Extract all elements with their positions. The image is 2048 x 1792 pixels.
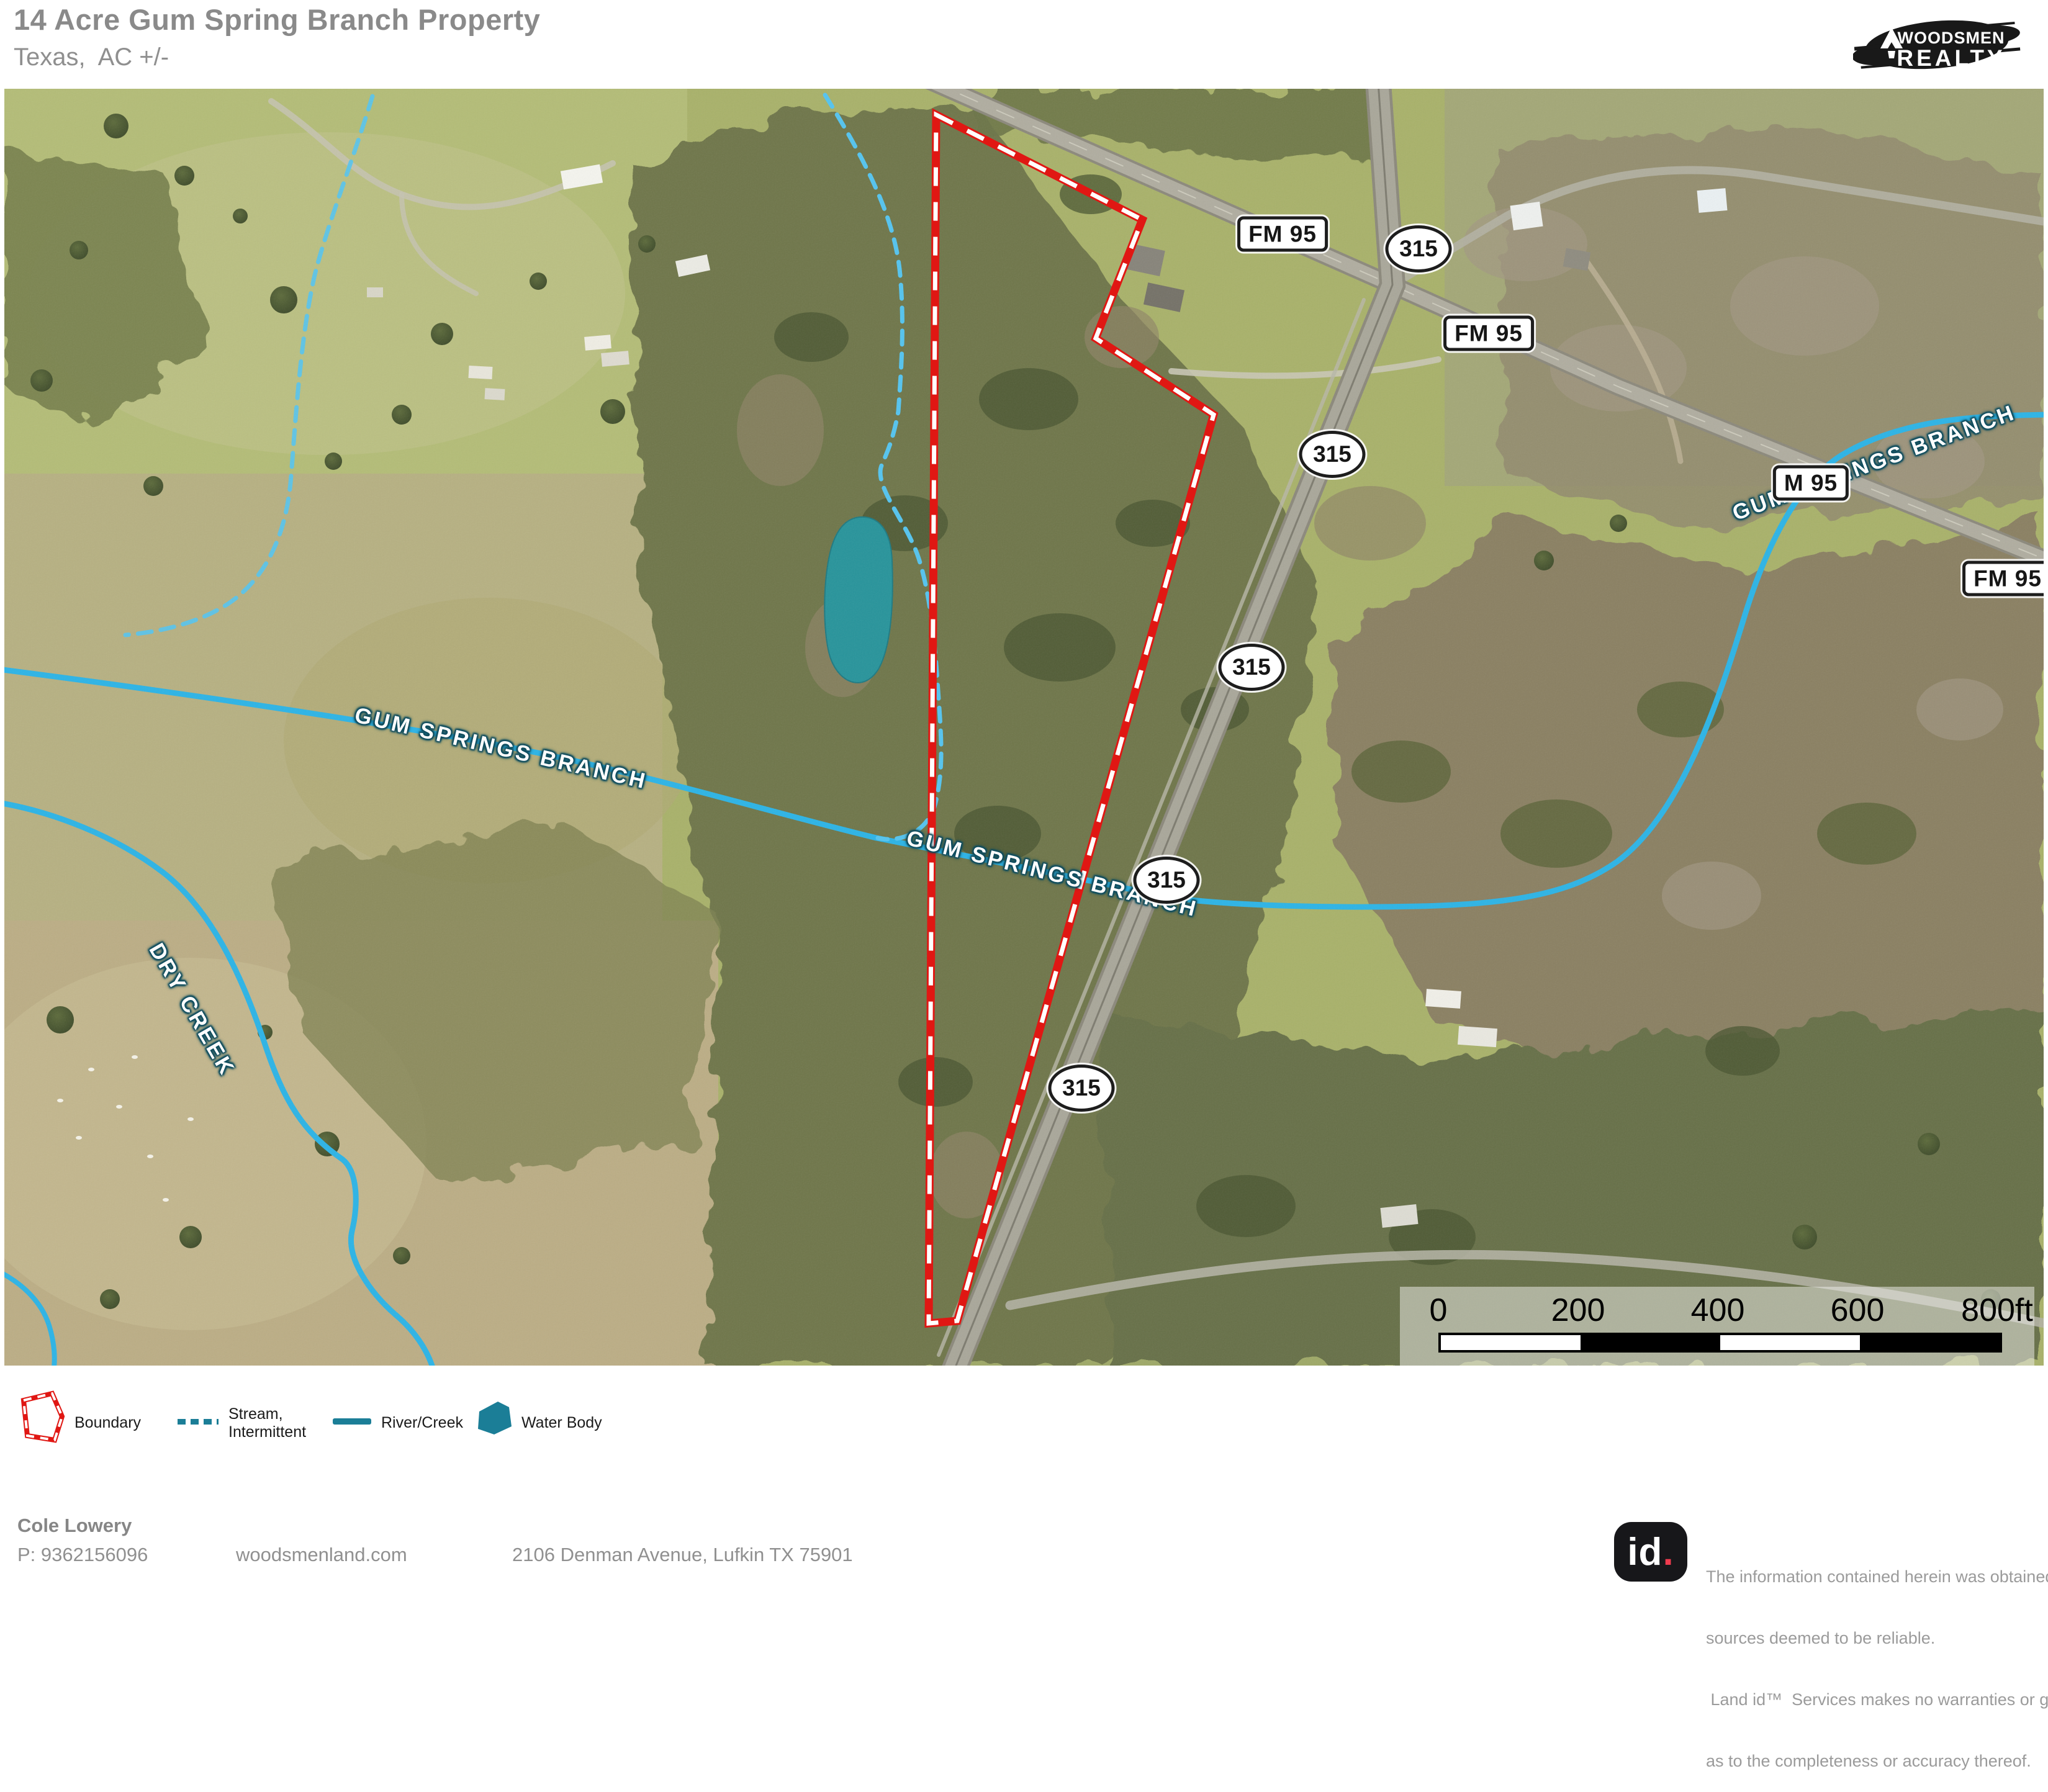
route-shield-315: 315 [1049,1065,1115,1112]
disclaimer-line: as to the completeness or accuracy there… [1706,1751,2048,1772]
land-id-logo-text: id [1627,1530,1662,1574]
page-title: 14 Acre Gum Spring Branch Property [14,2,540,37]
route-shield-315: 315 [1386,225,1452,272]
route-shield-315: 315 [1299,431,1366,478]
legend: Boundary Stream, Intermittent River/Cree… [17,1389,762,1454]
route-shield-315: 315 [1219,644,1285,691]
land-id-logo: id. [1614,1522,1687,1582]
land-id-logo-dot: . [1662,1530,1674,1574]
route-shield-m-95: M 95 [1773,466,1849,501]
route-shield-315: 315 [1134,857,1200,904]
agent-name: Cole Lowery [17,1515,132,1537]
scale-tick-400: 400 [1691,1292,1745,1329]
brand-name-bottom: REALTY [1897,45,2005,71]
scale-tick-600: 600 [1831,1292,1885,1329]
property-map: FM 95315FM 95M 95FM 95315315315315GUM SP… [4,89,2044,1366]
legend-label-water-body: Water Body [521,1414,602,1432]
stream-label-gum-springs-branch: GUM SPRINGS BRANCH [1730,400,2019,526]
brand-splash: WOODSMEN REALTY [1853,9,2021,82]
agent-phone: P: 9362156096 [17,1544,148,1566]
scale-tick-800ft: 800ft [1961,1292,2033,1329]
water-body-legend-icon [476,1400,513,1436]
boundary-legend-icon [17,1390,66,1446]
woodsmen-realty-logo: WOODSMEN REALTY [1853,9,2021,82]
disclaimer: The information contained herein was obt… [1706,1526,2048,1792]
river-creek-legend-icon [333,1418,371,1425]
agent-website[interactable]: woodsmenland.com [236,1544,407,1566]
route-shield-fm-95: FM 95 [1443,316,1534,351]
map-label-overlay: FM 95315FM 95M 95FM 95315315315315GUM SP… [4,89,2044,1366]
stream-label-dry-creek: DRY CREEK [144,939,240,1081]
route-shield-fm-95: FM 95 [1962,561,2044,597]
scale-bar: 0200400600800ft [1400,1287,2034,1366]
disclaimer-line: The information contained herein was obt… [1706,1567,2048,1587]
legend-label-stream: Stream, Intermittent [228,1405,306,1441]
scale-tick-200: 200 [1551,1292,1605,1329]
disclaimer-line: sources deemed to be reliable. [1706,1628,2048,1649]
brand-name-top: WOODSMEN [1898,29,2005,47]
stream-label-gum-springs-branch: GUM SPRINGS BRANCH [353,703,650,794]
agent-address: 2106 Denman Avenue, Lufkin TX 75901 [512,1544,853,1566]
scale-bar-strip [1438,1333,2002,1353]
legend-label-boundary: Boundary [74,1414,141,1432]
stream-intermittent-legend-icon [178,1419,219,1425]
property-map-page: { "header": { "title": "14 Acre Gum Spri… [0,0,2048,1583]
route-shield-fm-95: FM 95 [1237,217,1328,252]
page-subtitle: Texas, AC +/- [14,43,169,71]
legend-label-river: River/Creek [381,1414,463,1432]
scale-tick-0: 0 [1430,1292,1448,1329]
disclaimer-line: Land id™ Services makes no warranties or… [1706,1690,2048,1710]
